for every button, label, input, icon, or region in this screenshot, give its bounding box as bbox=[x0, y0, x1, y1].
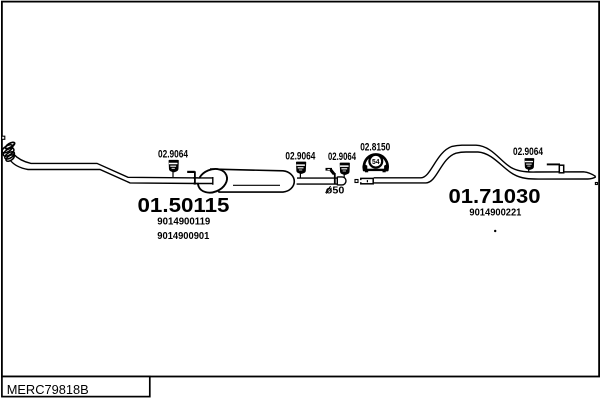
svg-text:9014900901: 9014900901 bbox=[157, 230, 209, 242]
svg-text:01.71030: 01.71030 bbox=[449, 186, 541, 208]
svg-text:54: 54 bbox=[372, 157, 380, 166]
svg-text:02.9064: 02.9064 bbox=[158, 148, 189, 160]
svg-text:02.8150: 02.8150 bbox=[360, 142, 390, 154]
svg-text:02.9064: 02.9064 bbox=[328, 151, 357, 163]
svg-text:01.50115: 01.50115 bbox=[138, 195, 230, 217]
svg-text:ø50: ø50 bbox=[326, 185, 345, 196]
svg-text:9014900119: 9014900119 bbox=[157, 215, 210, 227]
svg-text:02.9064: 02.9064 bbox=[285, 150, 316, 162]
svg-text:9014900221: 9014900221 bbox=[469, 207, 521, 219]
svg-text:MERC79818B: MERC79818B bbox=[7, 382, 89, 397]
svg-text:02.9064: 02.9064 bbox=[513, 146, 544, 158]
